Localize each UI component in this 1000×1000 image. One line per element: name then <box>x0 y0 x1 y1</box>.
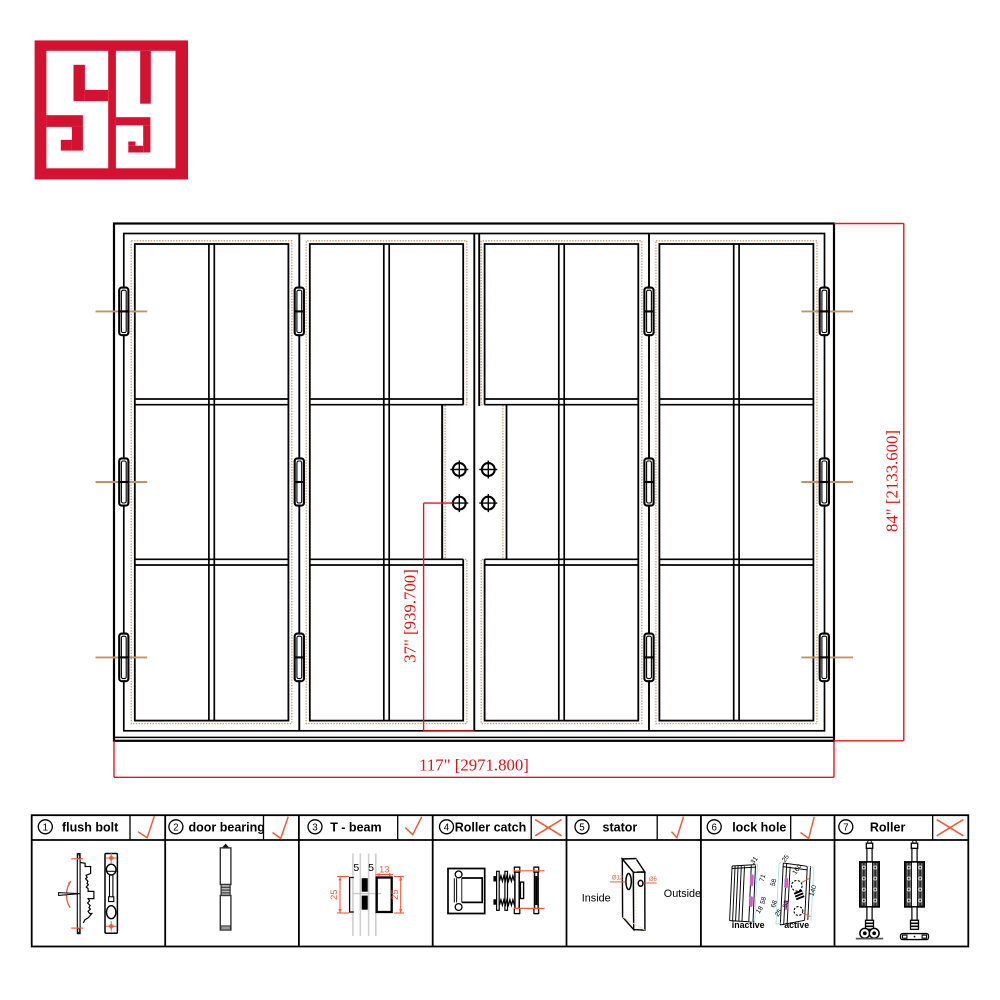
svg-text:4: 4 <box>444 823 450 834</box>
svg-text:Outside: Outside <box>664 888 701 900</box>
svg-text:31: 31 <box>750 855 760 865</box>
svg-text:6: 6 <box>711 823 717 834</box>
svg-text:2: 2 <box>173 823 178 834</box>
svg-text:inactive: inactive <box>732 920 765 930</box>
svg-text:37" [939.700]: 37" [939.700] <box>401 569 420 663</box>
svg-text:7: 7 <box>843 823 848 834</box>
svg-text:140: 140 <box>809 884 819 897</box>
svg-text:Inside: Inside <box>582 893 611 905</box>
svg-text:71: 71 <box>759 873 768 882</box>
svg-text:3: 3 <box>312 823 318 834</box>
svg-text:53: 53 <box>782 899 791 908</box>
svg-text:25: 25 <box>329 889 340 900</box>
svg-text:25: 25 <box>774 908 784 918</box>
svg-text:Ø6: Ø6 <box>649 877 658 883</box>
svg-text:5: 5 <box>579 823 585 834</box>
svg-text:13: 13 <box>379 865 390 876</box>
svg-text:117" [2971.800]: 117" [2971.800] <box>419 756 529 775</box>
svg-text:T - beam: T - beam <box>330 821 381 835</box>
svg-text:5: 5 <box>368 862 374 874</box>
svg-text:Roller: Roller <box>870 821 906 835</box>
svg-text:lock hole: lock hole <box>732 821 786 835</box>
svg-text:door bearing: door bearing <box>189 821 265 835</box>
svg-text:58: 58 <box>770 878 779 887</box>
svg-text:Ø12: Ø12 <box>612 876 624 882</box>
svg-text:stator: stator <box>603 821 638 835</box>
svg-text:flush bolt: flush bolt <box>62 821 119 835</box>
svg-text:18: 18 <box>755 905 765 915</box>
svg-text:58: 58 <box>759 896 768 905</box>
svg-text:84" [2133.600]: 84" [2133.600] <box>883 430 902 532</box>
svg-text:active: active <box>784 920 809 930</box>
svg-text:5: 5 <box>353 862 359 874</box>
svg-text:Roller catch: Roller catch <box>455 821 527 835</box>
svg-text:25: 25 <box>390 889 401 900</box>
svg-text:1: 1 <box>43 823 48 834</box>
